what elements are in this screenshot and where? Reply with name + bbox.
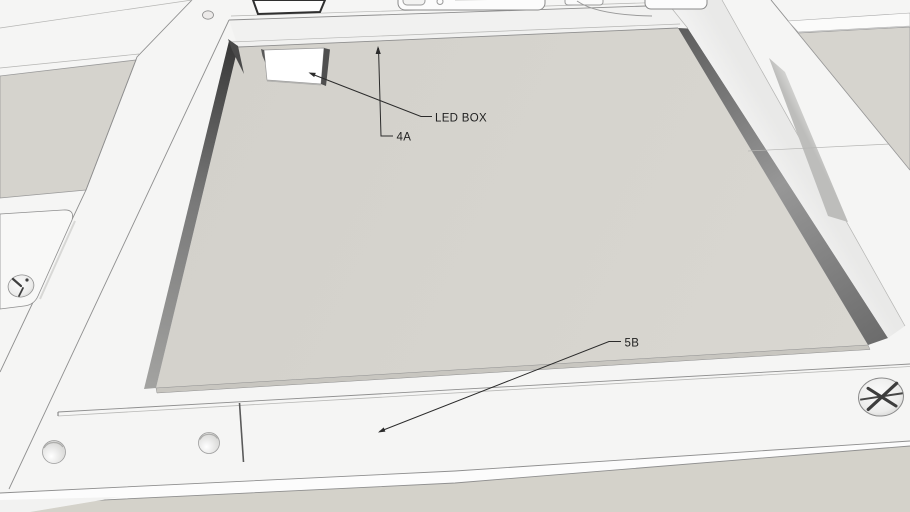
top-fixture-detail	[403, 0, 425, 5]
top-fixture-part-2	[645, 0, 707, 9]
led-box	[261, 48, 330, 86]
frame-hole-right-icon	[199, 433, 220, 454]
top-small-part	[565, 0, 603, 5]
label-led-box: LED BOX	[435, 113, 487, 125]
scene-svg: LED BOX 4A 5B	[0, 0, 910, 512]
label-4a: 4A	[397, 132, 412, 144]
model-viewport[interactable]: LED BOX 4A 5B	[0, 0, 910, 512]
top-box-part	[253, 0, 325, 14]
led-box-face	[264, 48, 324, 84]
frame-hole-left-icon	[43, 441, 66, 464]
rail-hole	[203, 11, 214, 19]
label-5b: 5B	[625, 338, 640, 350]
